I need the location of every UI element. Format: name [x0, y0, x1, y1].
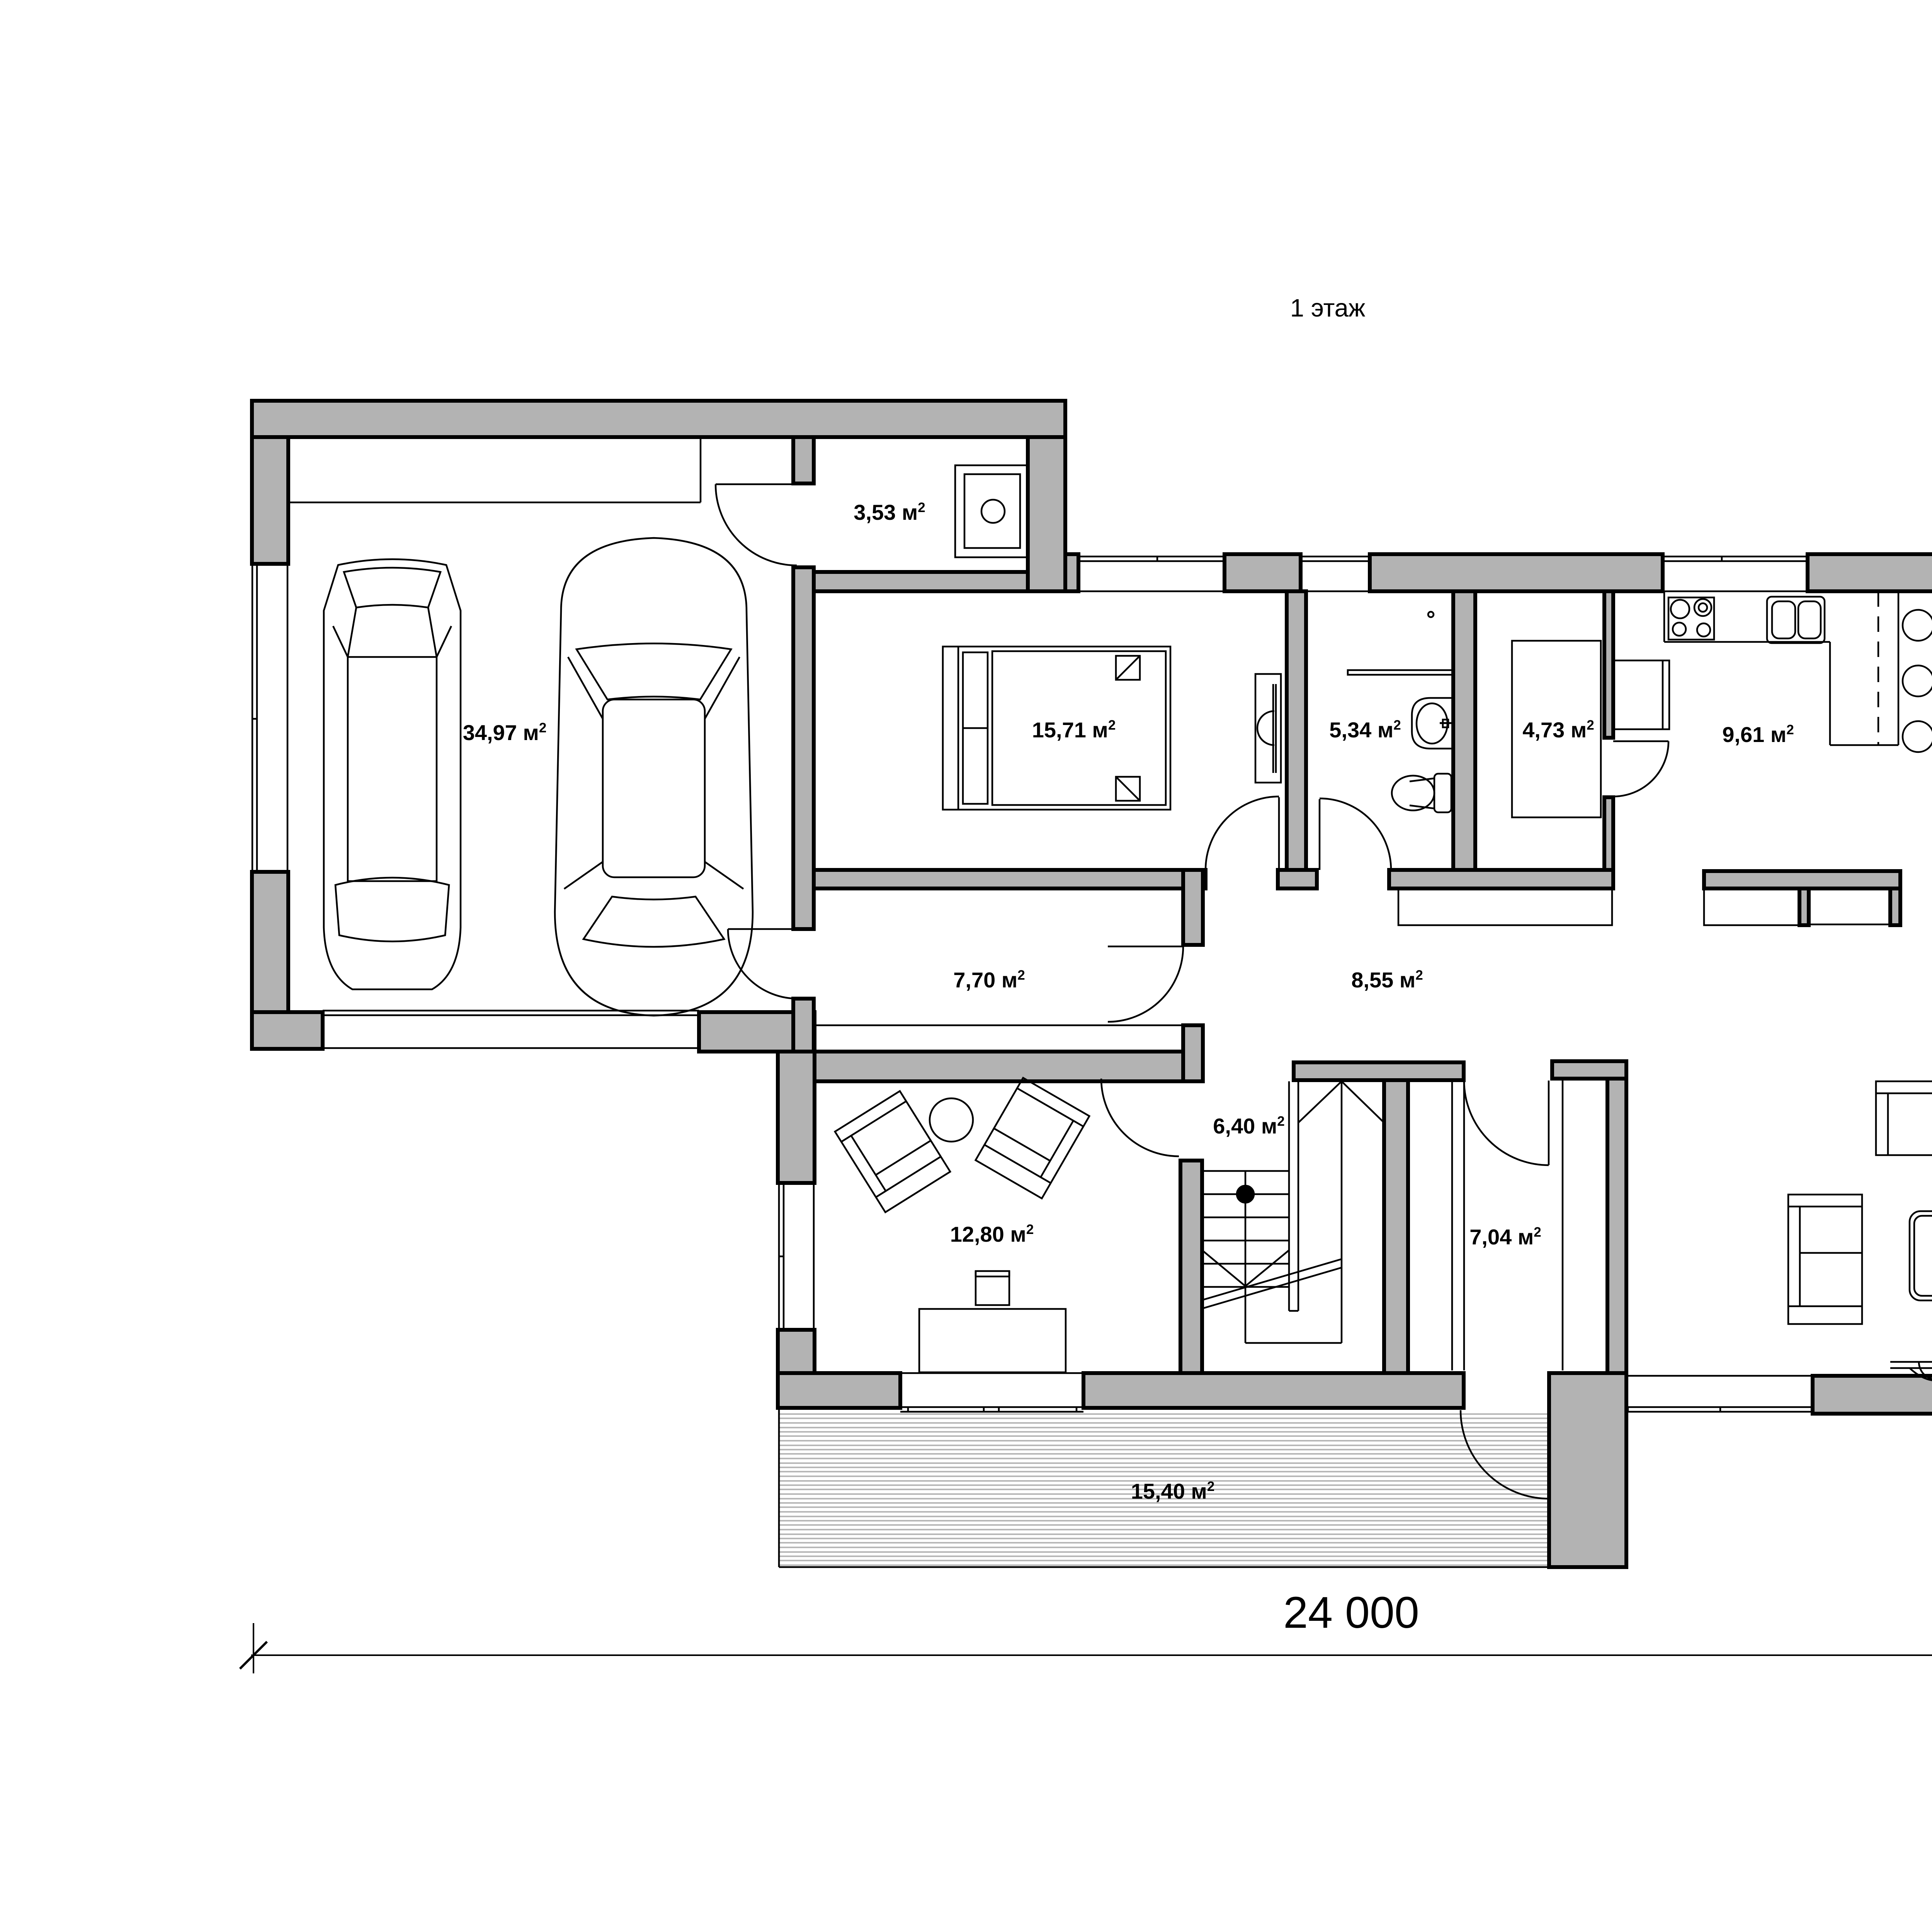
svg-text:3,53 м2: 3,53 м2 — [854, 500, 925, 524]
svg-text:24 000: 24 000 — [1283, 1588, 1419, 1637]
svg-text:34,97 м2: 34,97 м2 — [463, 720, 547, 745]
svg-text:12,80 м2: 12,80 м2 — [950, 1222, 1034, 1246]
svg-text:7,04 м2: 7,04 м2 — [1469, 1225, 1541, 1249]
svg-text:15,71 м2: 15,71 м2 — [1032, 718, 1116, 742]
svg-text:9,61 м2: 9,61 м2 — [1722, 722, 1794, 747]
svg-text:6,40 м2: 6,40 м2 — [1213, 1114, 1284, 1138]
svg-text:7,70 м2: 7,70 м2 — [953, 968, 1025, 992]
svg-text:15,40 м2: 15,40 м2 — [1131, 1479, 1215, 1503]
svg-text:8,55 м2: 8,55 м2 — [1351, 968, 1423, 992]
svg-text:4,73 м2: 4,73 м2 — [1522, 718, 1594, 742]
svg-text:5,34 м2: 5,34 м2 — [1329, 718, 1401, 742]
svg-text:1 этаж: 1 этаж — [1290, 294, 1366, 322]
